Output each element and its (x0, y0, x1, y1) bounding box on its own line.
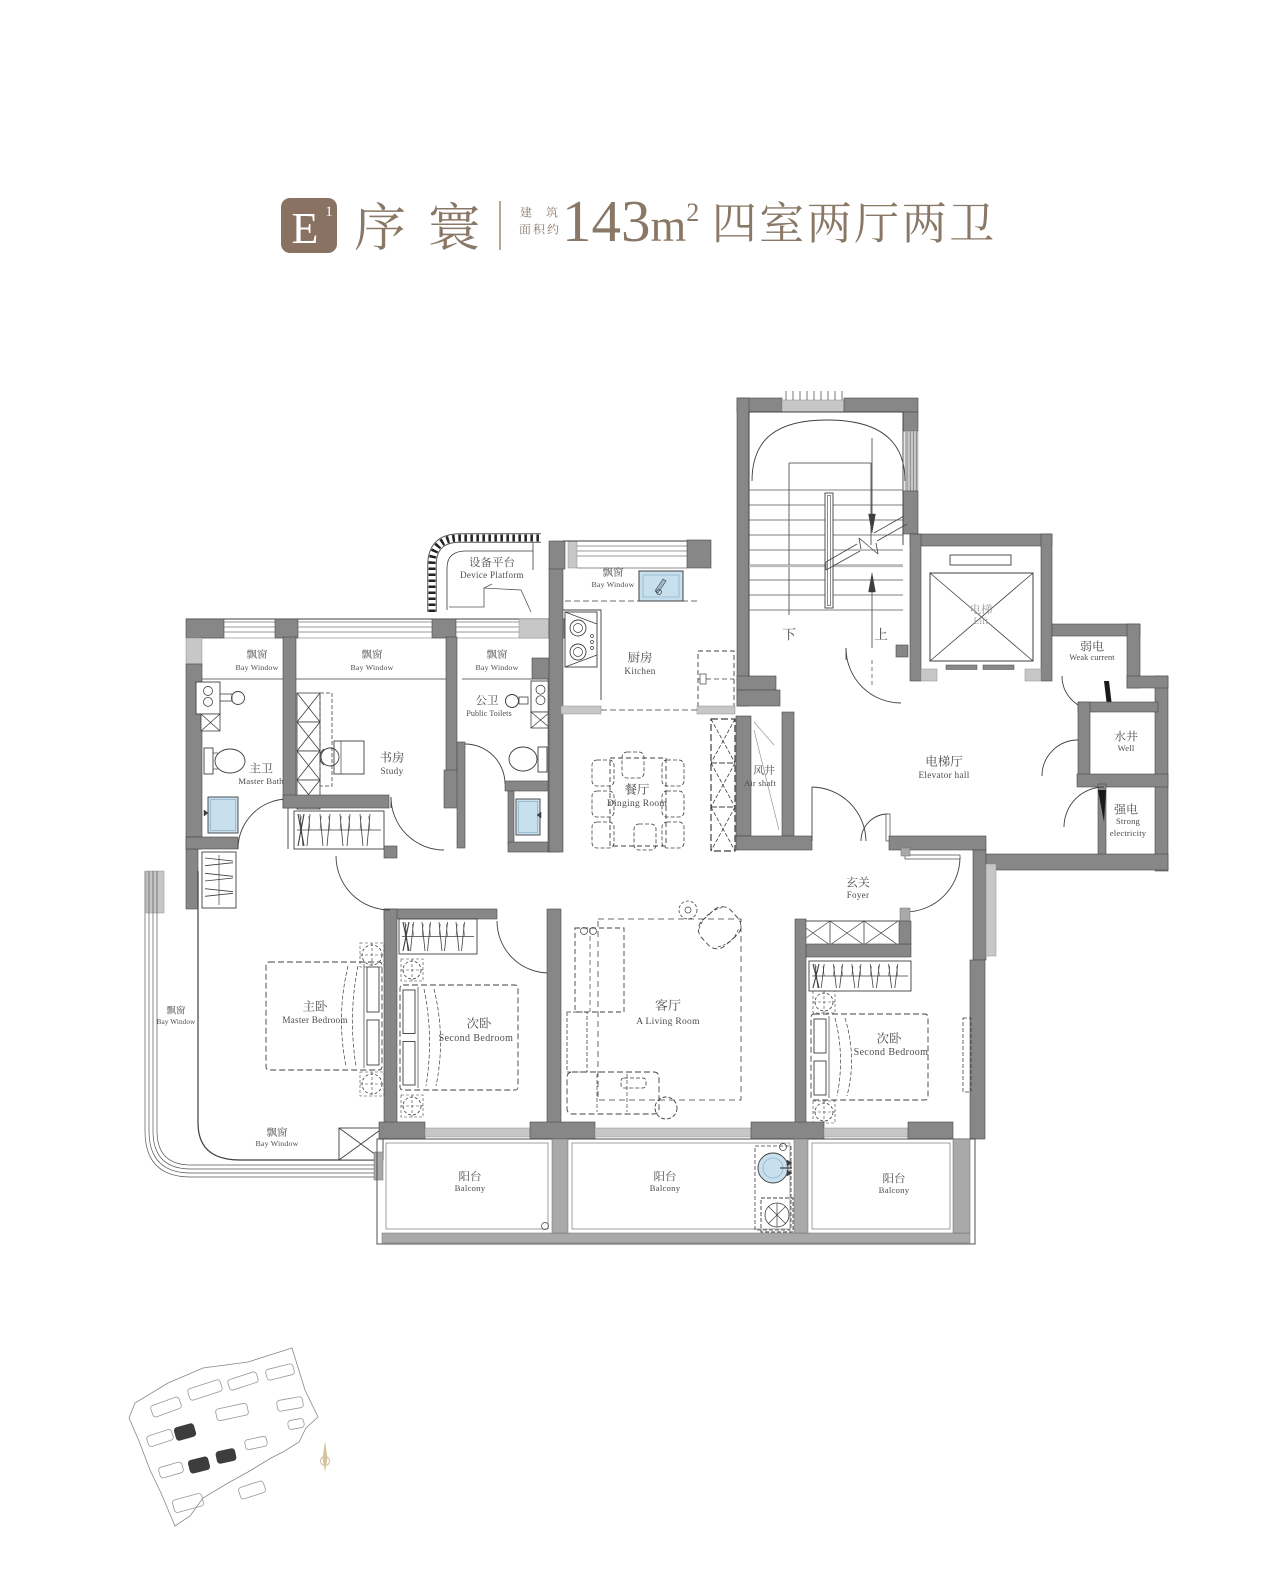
svg-text:Master Bedroom: Master Bedroom (282, 1016, 348, 1026)
svg-text:A Living Room: A Living Room (636, 1017, 700, 1027)
svg-text:Public Toilets: Public Toilets (466, 709, 511, 718)
svg-text:Dinging Room: Dinging Room (607, 799, 668, 809)
svg-text:electricity: electricity (1110, 828, 1147, 838)
svg-text:Bay Window: Bay Window (592, 580, 635, 589)
svg-text:Bay Window: Bay Window (236, 663, 279, 672)
svg-text:Foyer: Foyer (847, 890, 870, 900)
svg-text:Bay Window: Bay Window (256, 1139, 299, 1148)
svg-text:E: E (292, 204, 319, 253)
svg-text:Study: Study (381, 766, 404, 776)
svg-text:Kitchen: Kitchen (624, 666, 655, 676)
svg-text:Strong: Strong (1116, 816, 1141, 826)
svg-text:Device Platform: Device Platform (460, 570, 524, 580)
svg-text:Well: Well (1118, 743, 1135, 753)
svg-text:Balcony: Balcony (650, 1183, 681, 1193)
svg-text:1: 1 (325, 204, 333, 220)
svg-text:Bay Window: Bay Window (476, 663, 519, 672)
svg-text:Second Bedroom: Second Bedroom (439, 1033, 514, 1044)
svg-text:Second Bedroom: Second Bedroom (854, 1047, 929, 1058)
svg-text:Balcony: Balcony (879, 1185, 910, 1195)
svg-text:Master Bath: Master Bath (238, 776, 284, 786)
svg-text:Lift: Lift (974, 616, 989, 626)
svg-text:Air shaft: Air shaft (744, 778, 777, 788)
svg-text:143m2: 143m2 (562, 188, 699, 254)
svg-text:Bay Window: Bay Window (157, 1018, 196, 1026)
svg-text:Balcony: Balcony (455, 1183, 486, 1193)
svg-text:Elevator hall: Elevator hall (918, 770, 969, 780)
svg-text:Bay Window: Bay Window (351, 663, 394, 672)
svg-text:Weak current: Weak current (1069, 653, 1115, 662)
